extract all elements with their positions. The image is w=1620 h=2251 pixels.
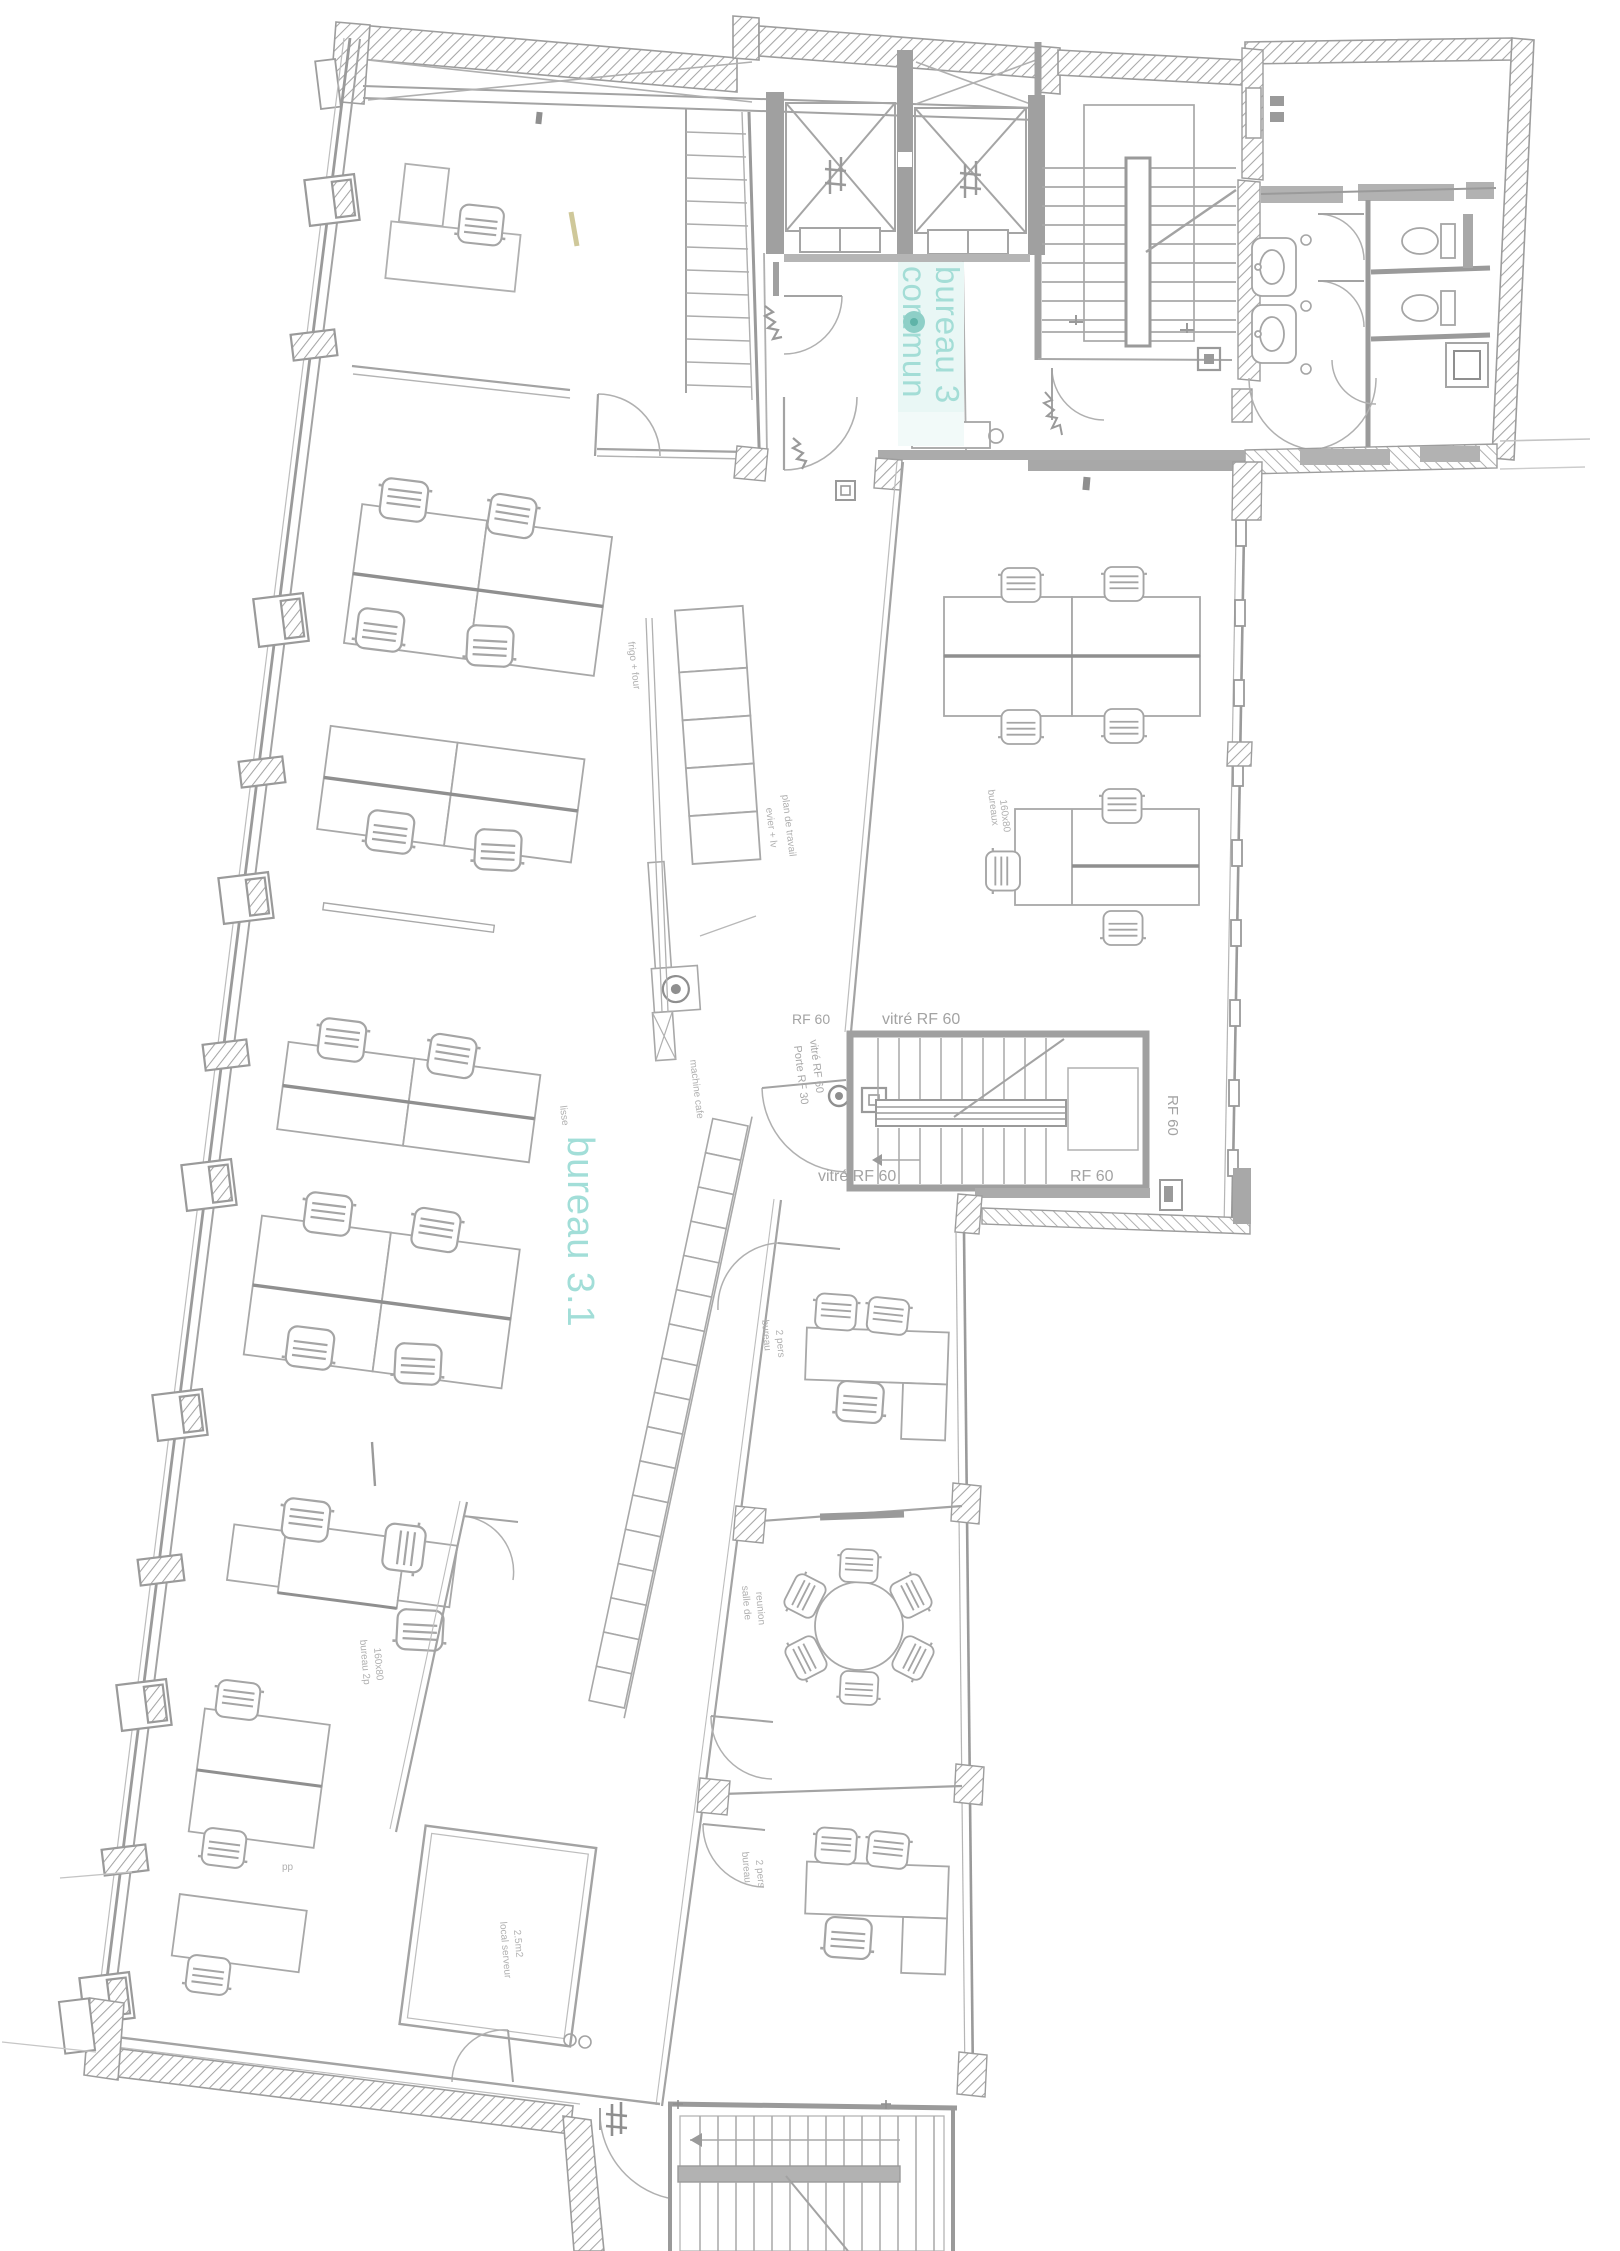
svg-text:pp: pp [282,1862,294,1873]
svg-text:bureau 3: bureau 3 [929,266,966,404]
svg-text:vitré RF 60: vitré RF 60 [882,1011,960,1028]
svg-text:vitré RF 60: vitré RF 60 [818,1168,896,1185]
svg-text:RF 60: RF 60 [792,1011,830,1027]
svg-text:RF 60: RF 60 [1164,1095,1181,1136]
svg-text:bureau 3.1: bureau 3.1 [559,1136,601,1328]
svg-text:RF 60: RF 60 [1070,1168,1114,1185]
